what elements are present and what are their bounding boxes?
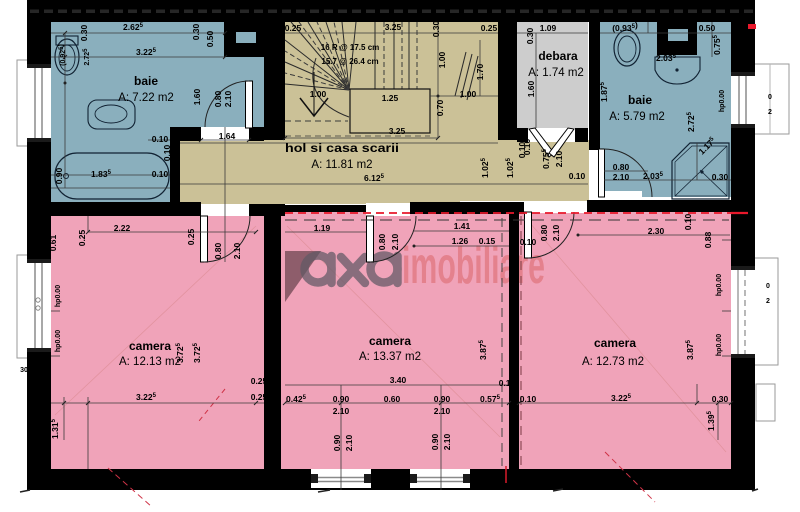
svg-text:camera: camera — [369, 334, 411, 348]
svg-text:0.50: 0.50 — [205, 30, 215, 47]
svg-text:0.80: 0.80 — [539, 224, 549, 241]
svg-text:2.22: 2.22 — [114, 223, 131, 233]
svg-text:2.10: 2.10 — [232, 242, 242, 259]
svg-text:0.80: 0.80 — [213, 90, 223, 107]
svg-text:baie: baie — [134, 74, 158, 88]
svg-text:3.25: 3.25 — [389, 126, 406, 136]
svg-text:A: 12.73 m2: A: 12.73 m2 — [582, 356, 644, 368]
svg-text:0.90: 0.90 — [54, 167, 64, 184]
svg-text:camera: camera — [129, 339, 171, 353]
svg-text:0.80: 0.80 — [613, 162, 630, 172]
svg-text:1.19: 1.19 — [314, 223, 331, 233]
svg-text:0.25: 0.25 — [481, 23, 498, 33]
svg-text:2.10: 2.10 — [442, 433, 452, 450]
svg-text:A: 1.74 m2: A: 1.74 m2 — [528, 67, 584, 79]
svg-text:0.90: 0.90 — [332, 434, 342, 451]
svg-text:0.30: 0.30 — [191, 23, 201, 40]
svg-text:0.61: 0.61 — [48, 234, 58, 251]
svg-text:15.7 @ 26.4 cm: 15.7 @ 26.4 cm — [321, 57, 378, 66]
svg-text:hol si casa scarii: hol si casa scarii — [285, 141, 399, 155]
svg-text:0.10: 0.10 — [152, 169, 169, 179]
svg-text:0.30: 0.30 — [431, 20, 441, 37]
svg-text:hp0.00: hp0.00 — [55, 285, 62, 307]
svg-text:2.10: 2.10 — [344, 434, 354, 451]
svg-text:0.10: 0.10 — [683, 213, 693, 230]
svg-text:camera: camera — [594, 336, 636, 350]
svg-text:0.25: 0.25 — [186, 228, 196, 245]
svg-text:0.30: 0.30 — [712, 172, 729, 182]
svg-text:1.64: 1.64 — [219, 131, 236, 141]
svg-text:0.10: 0.10 — [520, 237, 537, 247]
svg-text:1.00: 1.00 — [310, 89, 327, 99]
svg-text:1.41: 1.41 — [454, 221, 471, 231]
svg-text:2.10: 2.10 — [551, 224, 561, 241]
svg-text:A: 5.79 m2: A: 5.79 m2 — [609, 111, 665, 123]
svg-text:2: 2 — [766, 298, 770, 305]
svg-text:0.10: 0.10 — [520, 394, 537, 404]
svg-text:1.00: 1.00 — [437, 51, 447, 68]
svg-text:0.88: 0.88 — [703, 231, 713, 248]
svg-text:1.70: 1.70 — [475, 63, 485, 80]
svg-text:3.40: 3.40 — [390, 375, 407, 385]
svg-text:0.15: 0.15 — [479, 236, 496, 246]
svg-text:0.50: 0.50 — [699, 23, 716, 33]
svg-text:A: 12.13 m2: A: 12.13 m2 — [119, 356, 181, 368]
svg-text:16 R @ 17.5 cm: 16 R @ 17.5 cm — [321, 43, 380, 52]
svg-text:hp0.00: hp0.00 — [716, 274, 723, 296]
svg-text:2.10: 2.10 — [554, 150, 564, 167]
svg-text:2.10: 2.10 — [390, 233, 400, 250]
svg-text:A: 7.22 m2: A: 7.22 m2 — [118, 92, 174, 104]
svg-text:0.25: 0.25 — [251, 392, 268, 402]
svg-text:0.25: 0.25 — [285, 23, 302, 33]
svg-text:1.00: 1.00 — [460, 89, 477, 99]
svg-text:1.26: 1.26 — [452, 236, 469, 246]
svg-text:0.10: 0.10 — [569, 171, 586, 181]
svg-text:0: 0 — [768, 94, 772, 101]
svg-text:2.10: 2.10 — [434, 406, 451, 416]
svg-text:0.10: 0.10 — [499, 378, 516, 388]
svg-text:baie: baie — [628, 93, 652, 107]
svg-text:debara: debara — [538, 49, 578, 63]
svg-text:1.09: 1.09 — [540, 23, 557, 33]
svg-text:2.10: 2.10 — [223, 90, 233, 107]
svg-text:0.80: 0.80 — [213, 242, 223, 259]
svg-text:hp0.00: hp0.00 — [716, 334, 723, 356]
svg-text:0.25: 0.25 — [251, 376, 268, 386]
svg-text:2.30: 2.30 — [648, 226, 665, 236]
svg-text:0.10: 0.10 — [162, 144, 172, 161]
svg-text:0.80: 0.80 — [377, 233, 387, 250]
svg-text:hp0.00: hp0.00 — [719, 90, 726, 112]
svg-text:0.90: 0.90 — [430, 433, 440, 450]
svg-text:0.10: 0.10 — [152, 134, 169, 144]
svg-text:30: 30 — [20, 367, 28, 374]
svg-text:0.10: 0.10 — [517, 141, 527, 158]
svg-text:0.25: 0.25 — [77, 229, 87, 246]
svg-text:0.70: 0.70 — [435, 99, 445, 116]
svg-text:1.25: 1.25 — [382, 93, 399, 103]
svg-text:0.30: 0.30 — [712, 394, 729, 404]
svg-text:0.30: 0.30 — [525, 27, 535, 44]
svg-text:hp0.00: hp0.00 — [55, 330, 62, 352]
svg-text:1.60: 1.60 — [526, 80, 536, 97]
svg-text:2.10: 2.10 — [333, 406, 350, 416]
svg-text:1.60: 1.60 — [192, 88, 202, 105]
svg-text:2: 2 — [768, 109, 772, 116]
svg-text:0.90: 0.90 — [333, 394, 350, 404]
svg-text:0.30: 0.30 — [79, 24, 89, 41]
svg-text:0.60: 0.60 — [384, 394, 401, 404]
svg-text:A: 13.37 m2: A: 13.37 m2 — [359, 351, 421, 363]
svg-text:0.90: 0.90 — [434, 394, 451, 404]
svg-text:0: 0 — [766, 283, 770, 290]
svg-text:2.10: 2.10 — [613, 172, 630, 182]
svg-text:3.25: 3.25 — [385, 22, 402, 32]
svg-text:A: 11.81 m2: A: 11.81 m2 — [311, 159, 372, 171]
